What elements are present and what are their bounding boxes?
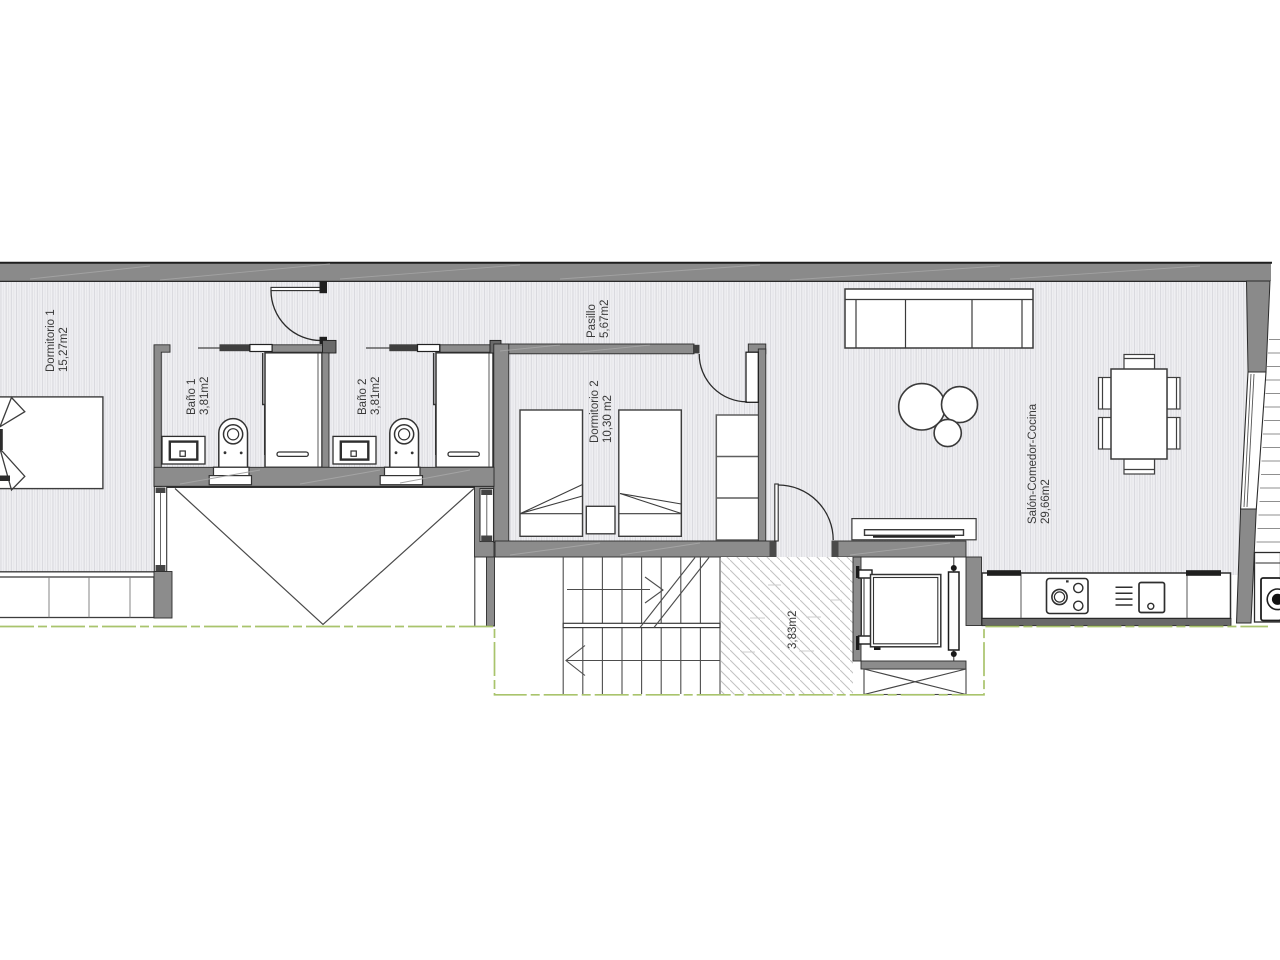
- svg-text:Pasillo: Pasillo: [586, 304, 598, 338]
- svg-text:Dormitorio 1: Dormitorio 1: [45, 309, 57, 372]
- svg-text:10,30 m2: 10,30 m2: [602, 395, 614, 443]
- svg-text:Baño 1: Baño 1: [186, 379, 198, 415]
- svg-text:3,83m2: 3,83m2: [787, 611, 799, 649]
- svg-text:5,67m2: 5,67m2: [599, 300, 611, 338]
- svg-text:3,81m2: 3,81m2: [370, 377, 382, 415]
- svg-text:Dormitorio 2: Dormitorio 2: [589, 380, 601, 443]
- svg-text:Salón-Comedor-Cocina: Salón-Comedor-Cocina: [1027, 403, 1039, 524]
- svg-text:29,66m2: 29,66m2: [1040, 479, 1052, 524]
- svg-text:15,27m2: 15,27m2: [58, 327, 70, 372]
- svg-text:Baño 2: Baño 2: [357, 379, 369, 415]
- svg-text:3,81m2: 3,81m2: [199, 377, 211, 415]
